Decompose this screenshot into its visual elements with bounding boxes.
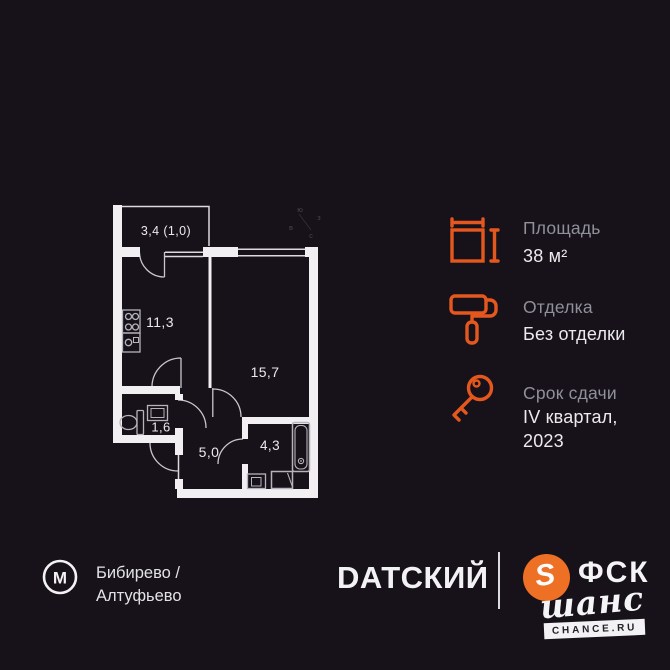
hall-area-label: 5,0: [199, 444, 220, 460]
paint-roller-icon: [448, 292, 500, 350]
wall-wc-right-b: [175, 428, 183, 435]
floor-plan: 3,4 (1,0) 11,3 15,7 1,6 5,0 4,3 ю з в с: [85, 193, 335, 508]
area-value: 38 м²: [523, 246, 567, 267]
finishing-value: Без отделки: [523, 324, 626, 345]
wc-door-arc: [178, 400, 206, 428]
wall-bath-left-a: [242, 424, 248, 439]
wc-sink-icon: [148, 406, 168, 421]
balcony-door-arc: [140, 252, 165, 277]
area-label: Площадь: [523, 218, 601, 239]
metro-station-line2: Алтуфьево: [96, 585, 182, 608]
area-dimensions-icon: [448, 214, 502, 268]
wall-wc-top: [122, 386, 180, 394]
bathtub-icon: [293, 423, 310, 472]
stove-icon: [123, 310, 141, 333]
wall-wc-right-a: [175, 394, 183, 400]
kitchen-door-arc: [152, 358, 181, 388]
metro-station-line1: Бибирево /: [96, 562, 182, 585]
balcony-area-label: 3,4 (1,0): [141, 224, 191, 238]
bath-area-label: 4,3: [260, 438, 280, 453]
wall-bottom: [177, 489, 318, 498]
wall-hall-left-lower: [175, 479, 183, 489]
developer-site-badge[interactable]: CHANCE.RU: [544, 619, 646, 639]
living-area-label: 15,7: [251, 364, 280, 380]
wall-right: [309, 247, 318, 498]
compass-west: з: [317, 213, 321, 222]
compass-north: с: [309, 231, 313, 240]
metro-letter: М: [53, 569, 67, 588]
footer-divider: [498, 552, 500, 609]
kitchen-area-label: 11,3: [146, 314, 174, 330]
wall-top-center: [203, 247, 238, 257]
bath-sink-icon: [272, 472, 293, 489]
wall-top-kitchen: [122, 247, 140, 257]
key-icon: [444, 373, 502, 429]
compass-icon: ю з в с: [289, 205, 321, 240]
wc-area-label: 1,6: [151, 420, 170, 435]
wall-wc-bottom: [113, 435, 183, 443]
kitchen-sink-icon: [123, 333, 141, 352]
washer-icon: [248, 474, 266, 489]
deadline-value-line2: 2023: [523, 431, 564, 452]
wall-hall-left-upper: [175, 443, 183, 455]
deadline-value-line1: IV квартал,: [523, 407, 618, 428]
living-door-arc: [213, 388, 241, 417]
developer-script-logo: шанс: [533, 581, 651, 624]
apartment-ad-banner[interactable]: 3,4 (1,0) 11,3 15,7 1,6 5,0 4,3 ю з в с …: [0, 0, 670, 670]
metro-icon: М: [41, 558, 79, 596]
wall-left: [113, 205, 122, 443]
living-window: [238, 249, 305, 256]
finishing-label: Отделка: [523, 297, 593, 318]
kitchen-window: [165, 252, 203, 256]
project-logo: DАТСКИЙ: [337, 560, 489, 596]
wall-partition-living: [209, 257, 212, 388]
deadline-label: Срок сдачи: [523, 383, 617, 404]
toilet-icon: [120, 411, 144, 435]
entrance-door-arc: [150, 443, 178, 471]
metro-stations: Бибирево / Алтуфьево: [96, 562, 182, 608]
compass-south: ю: [297, 205, 303, 214]
bath-door-arc: [218, 439, 243, 464]
compass-east: в: [289, 223, 293, 232]
plan-fixtures: [120, 310, 310, 489]
